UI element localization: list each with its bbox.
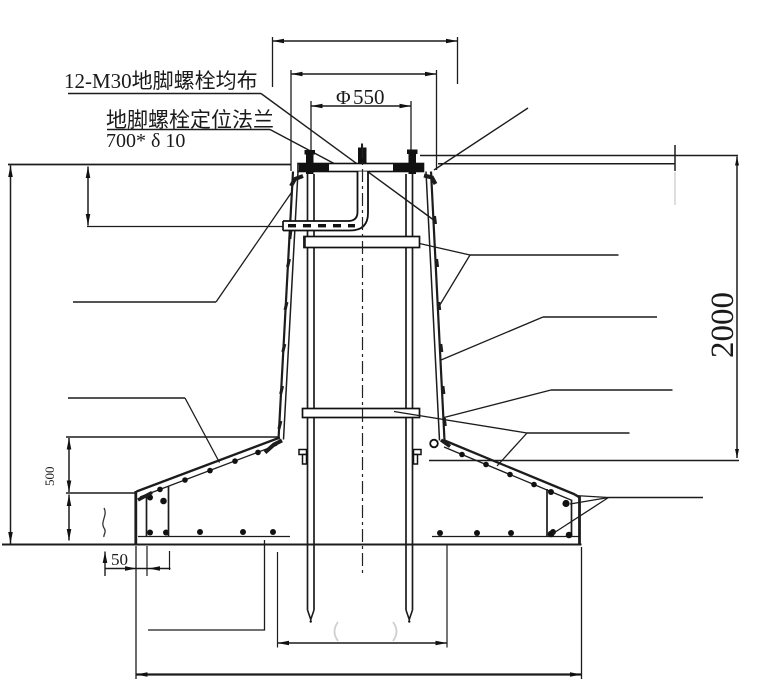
svg-text:700* δ 10: 700* δ 10 — [106, 130, 185, 152]
svg-text:50: 50 — [111, 550, 128, 569]
svg-text:地脚螺栓定位法兰: 地脚螺栓定位法兰 — [106, 108, 274, 132]
svg-text:500: 500 — [42, 467, 57, 487]
svg-text:2000: 2000 — [705, 292, 741, 358]
svg-text:12-M30地脚螺栓均布: 12-M30地脚螺栓均布 — [64, 69, 258, 93]
